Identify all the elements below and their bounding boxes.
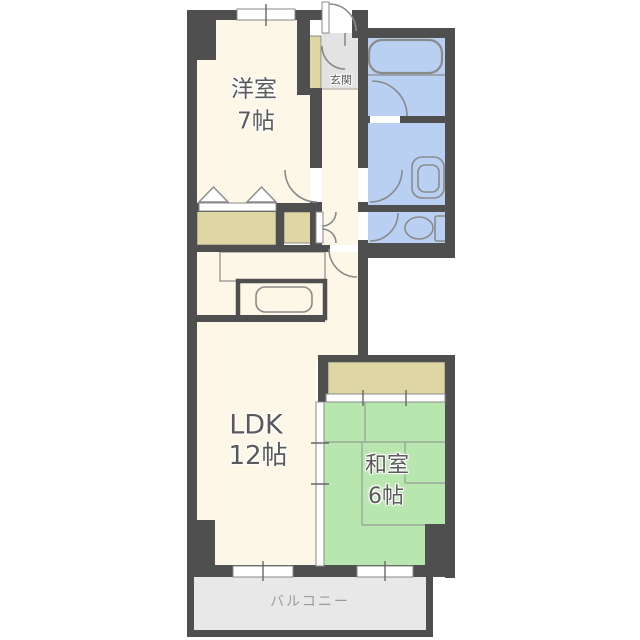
washroom-floor <box>368 123 445 205</box>
closet-sliding-door <box>199 203 276 211</box>
balcony-label: バルコニー <box>270 595 350 609</box>
wall-washroom-toilet-divider <box>358 205 445 212</box>
closet-wide <box>197 210 276 245</box>
entrance-door-leaf <box>322 2 329 33</box>
doorway-bath <box>370 116 400 123</box>
wall-bath-top <box>358 28 455 38</box>
floorplan-canvas: 洋室 7帖 玄関 LDK 12帖 和室 6帖 バルコニー <box>0 0 640 640</box>
ldk-size: 12帖 <box>228 443 287 469</box>
bathroom-floor <box>368 38 445 116</box>
floorplan-drawing <box>0 0 640 640</box>
wall-pillar-bottom-right <box>425 524 452 573</box>
wall-bottom <box>187 565 455 577</box>
wall-pillar-bottom-left <box>187 520 215 572</box>
doorway-western <box>310 168 322 202</box>
wall-left <box>187 10 197 572</box>
japanese-room-size: 6帖 <box>368 486 404 508</box>
doorway-toilet <box>358 212 368 240</box>
wall-japanese-top <box>318 355 455 362</box>
western-room-size: 7帖 <box>237 111 275 134</box>
japanese-room-label: 和室 <box>365 455 409 477</box>
oshiire-sliding-door <box>326 394 445 402</box>
oshiire-closet <box>328 362 445 394</box>
closet-double-door-face <box>316 212 323 243</box>
wall-western-right <box>297 20 310 95</box>
wall-closet-bottom <box>188 245 330 252</box>
wall-right-upper <box>445 28 455 258</box>
entrance-label: 玄関 <box>330 75 352 86</box>
wall-toilet-bottom <box>358 243 455 258</box>
western-room-label: 洋室 <box>231 79 277 102</box>
doorway-ldk <box>330 245 357 252</box>
wall-kitchen-bottom <box>188 315 325 322</box>
ldk-label: LDK <box>229 412 283 439</box>
doorway-washroom <box>358 168 368 202</box>
hallway-floor <box>320 88 358 245</box>
